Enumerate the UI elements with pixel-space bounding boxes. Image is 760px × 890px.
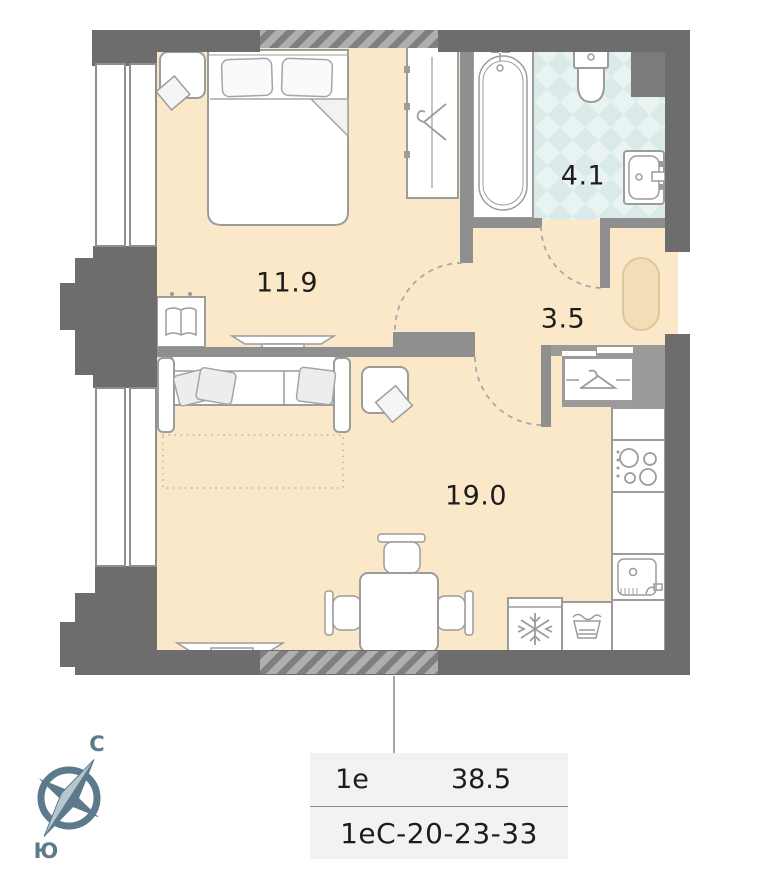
double-bed <box>208 50 348 225</box>
bedroom-dresser <box>157 292 205 347</box>
chair <box>437 596 465 630</box>
compass-rose <box>14 740 124 856</box>
kitchen-cabinet <box>612 600 665 652</box>
compass-south-label: Ю <box>34 839 59 863</box>
bathtub <box>473 46 533 218</box>
layout-type-value: 1е <box>310 764 394 795</box>
chair <box>378 534 425 542</box>
bedroom-wardrobe <box>404 47 458 198</box>
info-card-top-row: 1е 38.5 <box>310 753 568 806</box>
kitchen-cabinet <box>612 492 665 554</box>
bedroom-area-label: 11.9 <box>256 268 318 299</box>
toilet <box>574 47 608 102</box>
unit-code-value: 1еС-20-23-33 <box>310 807 568 859</box>
sofa-pillow <box>195 367 236 405</box>
hall-rug <box>623 258 659 330</box>
chair <box>333 596 361 630</box>
cooktop <box>612 440 665 492</box>
pillow <box>221 58 272 97</box>
window-pane <box>96 64 125 246</box>
book-icon <box>166 308 196 335</box>
bathroom-area-label: 4.1 <box>561 161 605 192</box>
compass-north-label: С <box>89 732 104 756</box>
hallway-area-label: 3.5 <box>541 304 585 335</box>
kitchen-counter <box>612 408 665 652</box>
chair <box>465 591 473 635</box>
chair <box>325 591 333 635</box>
window-pane <box>96 388 125 566</box>
floor-plan: 11.9 4.1 3.5 19.0 С Ю 1е 38.5 1еС-20-23-… <box>0 0 760 890</box>
window-pane <box>130 64 156 246</box>
top-glazing-hatch <box>260 30 438 48</box>
sofa-pillow <box>296 367 336 405</box>
bottom-glazing-hatch <box>260 651 438 674</box>
bathroom-sink <box>624 151 665 204</box>
window-pane <box>130 388 156 566</box>
entry-floor <box>665 252 678 334</box>
pillow <box>281 58 332 97</box>
fridge <box>508 598 562 652</box>
living-area-label: 19.0 <box>445 481 507 512</box>
chair <box>384 542 420 573</box>
dishwasher <box>562 602 612 652</box>
kitchen-cabinet <box>612 408 665 440</box>
total-area-value: 38.5 <box>394 764 568 795</box>
